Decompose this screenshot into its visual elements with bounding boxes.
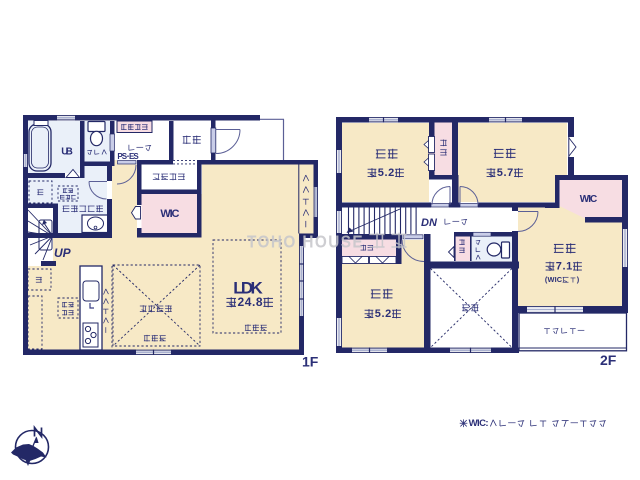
svg-text:UP: UP xyxy=(54,246,72,260)
svg-text:TOHO HOUSE: TOHO HOUSE xyxy=(247,232,364,252)
svg-text:5.2: 5.2 xyxy=(378,167,395,179)
svg-text:5.7: 5.7 xyxy=(497,167,514,179)
svg-text:(WIC: (WIC xyxy=(545,275,563,284)
svg-text:WIC: WIC xyxy=(580,194,597,205)
svg-text:PS･ES: PS･ES xyxy=(117,152,139,161)
svg-text:WIC:: WIC: xyxy=(469,418,489,429)
svg-text:WIC: WIC xyxy=(160,208,179,220)
svg-text:7.1: 7.1 xyxy=(556,261,573,273)
svg-text:DN: DN xyxy=(421,217,438,229)
svg-text:2F: 2F xyxy=(600,352,617,368)
svg-text:1F: 1F xyxy=(302,354,319,370)
svg-text:UB: UB xyxy=(61,146,73,157)
svg-text:24.8: 24.8 xyxy=(238,295,263,309)
svg-text:5.2: 5.2 xyxy=(375,308,392,320)
